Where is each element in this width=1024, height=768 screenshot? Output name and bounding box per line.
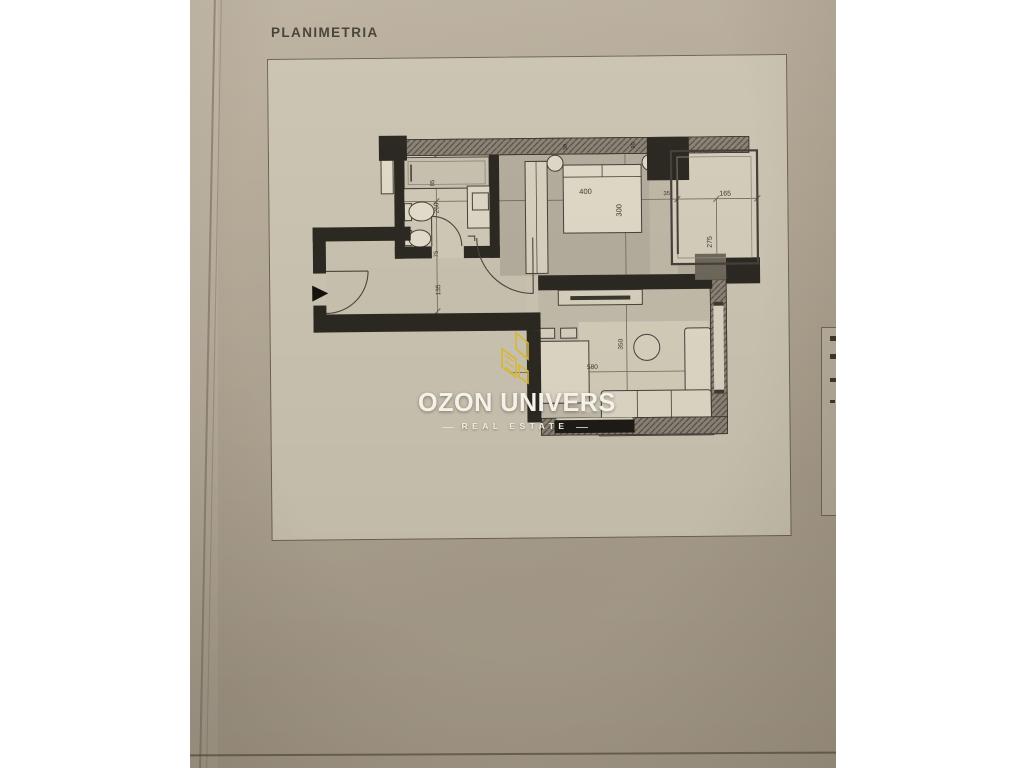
dim-wall-a: 30 (563, 144, 569, 150)
bedroom-door (533, 237, 534, 293)
coffee-table (634, 334, 660, 360)
watermark-brand: OZON UNIVERS (418, 389, 612, 416)
dim-balcony-depth: 275 (707, 236, 714, 248)
column (647, 137, 689, 180)
dim-bed-depth: 300 (614, 204, 623, 217)
floorplan-drawing: 400 300 165 275 35 85 260 75 135 580 350… (268, 55, 791, 540)
dim-balcony-width: 165 (719, 191, 731, 198)
floorplan-frame: 400 300 165 275 35 85 260 75 135 580 350… (267, 54, 792, 541)
dim-living-depth: 350 (618, 338, 625, 349)
page-bottom-edge (190, 752, 836, 757)
watermark-tagline: REAL ESTATE (415, 421, 615, 431)
agency-watermark: OZON UNIVERS REAL ESTATE (415, 331, 615, 431)
dim-bath-length: 260 (433, 202, 440, 213)
bidet-bowl (409, 230, 431, 247)
screenshot: PLANIMETRIA (0, 0, 1024, 768)
dim-gap: 35 (663, 191, 670, 197)
nightstand-left (547, 155, 563, 171)
dim-bath-top: 85 (430, 179, 436, 186)
dim-bath-door: 75 (434, 250, 440, 257)
dim-hall: 135 (435, 284, 442, 295)
dim-bed-width: 400 (579, 187, 592, 196)
dim-wall-b: 30 (631, 142, 637, 148)
document-photo: PLANIMETRIA (190, 0, 836, 768)
cut-off-side-frame (821, 327, 836, 516)
toilet-bowl (409, 202, 434, 221)
page-title: PLANIMETRIA (271, 25, 379, 40)
shaft-niche (381, 160, 393, 194)
window-right (713, 302, 724, 394)
ozon-univers-logo-icon (492, 331, 538, 387)
